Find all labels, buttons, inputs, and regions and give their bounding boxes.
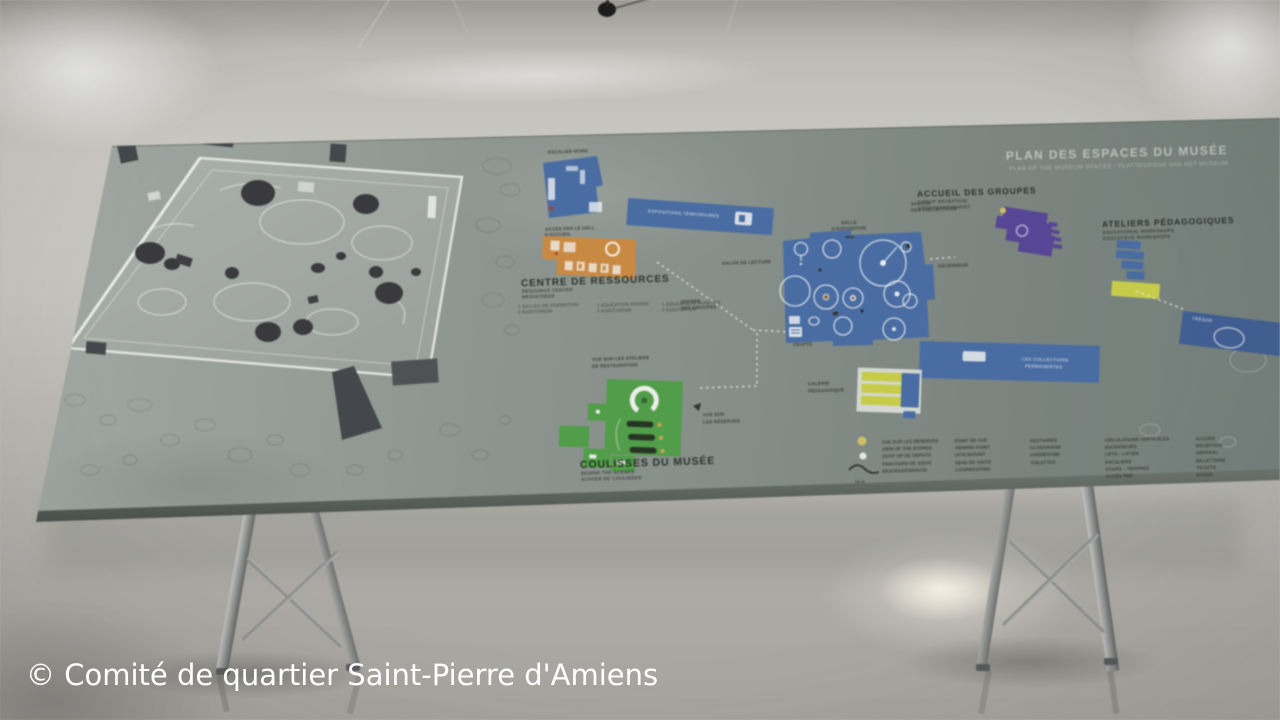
legend-column-3: VESTIAIRES CLOAKROOM GARDEROBE TOILETTES	[1030, 437, 1061, 467]
legend-route-line	[849, 465, 879, 473]
map-zone-ped-gallery	[856, 368, 922, 419]
collections-label-2: PERMANENTES	[1025, 364, 1063, 370]
panel-etched-marks-light	[1140, 348, 1266, 447]
legend-line: GARDEROBE	[1030, 451, 1061, 459]
map-zone-collections	[919, 341, 1100, 383]
legend-line: BEZOEKERSROUTE	[882, 466, 939, 475]
collections-label-1: LES COLLECTIONS	[1022, 356, 1069, 363]
legend-column-4: CIRCULATIONS VERTICALES ASCENSEURS LIFTS…	[1104, 435, 1170, 480]
expo-room-tick	[845, 236, 854, 238]
legend-dot-yellow	[858, 437, 867, 446]
legend-dot-white	[860, 453, 867, 460]
legend-line: KASSA	[1196, 471, 1226, 479]
legend-column-5: ACCUEIL RECEPTION ONTHAAL BILLETTERIE TI…	[1195, 435, 1226, 479]
map-zone-main-gallery	[780, 230, 935, 346]
scale-label: 10 m	[855, 479, 865, 485]
photo-credit-caption: © Comité de quartier Saint-Pierre d'Amie…	[26, 658, 658, 692]
gallery-label-2: PÉDAGOGIQUE	[808, 387, 845, 394]
reserves-arrow-icon	[693, 403, 701, 411]
map-zone-resource-centre	[541, 236, 637, 278]
gallery-label-1: GALERIE	[808, 381, 830, 388]
map-zone-workshops	[1111, 240, 1163, 299]
lift-label: ASCENSEUR	[938, 262, 968, 269]
reserves-view-label-1: VUE SUR	[703, 412, 725, 419]
model-light-patch	[298, 181, 315, 192]
reserves-view-label-2: LES RÉSERVES	[703, 418, 740, 425]
access-label-2: D'ACCUEIL	[545, 232, 571, 239]
crypt-label: CRYPTE	[793, 342, 813, 349]
entrance-label-2: DES GROUPES	[681, 304, 717, 311]
legend-line: TOILETTES	[1030, 458, 1061, 466]
legend-column-2: POINT DE VUE VIEWING POINT UITKIJKPUNT S…	[955, 437, 992, 474]
legend-column-1: VUE SUR LES RÉSERVES VIEW OF THE STORES …	[882, 437, 940, 474]
photo-scene: PLAN DES ESPACES DU MUSÉE PLAN OF THE MU…	[0, 0, 1280, 720]
resources-sub2: MEDIATHEEK	[522, 293, 555, 300]
legend-icons	[849, 437, 879, 474]
model-light-patch	[427, 196, 436, 218]
map-zone-blue-stairs	[543, 156, 603, 218]
legend-line: LOOPRICHTING	[955, 465, 991, 473]
resources-col2-line2: 2 AUDITORIUM	[597, 307, 632, 314]
ceiling-object-stem	[606, 0, 609, 6]
leg-shadow-right	[900, 636, 1160, 688]
resources-col1-line2: 2 AUDITORIUM	[518, 308, 553, 315]
museum-photo: PLAN DES ESPACES DU MUSÉE PLAN OF THE MU…	[0, 0, 1280, 720]
map-zone-group-reception	[992, 206, 1067, 258]
model-light-patch	[147, 191, 160, 201]
